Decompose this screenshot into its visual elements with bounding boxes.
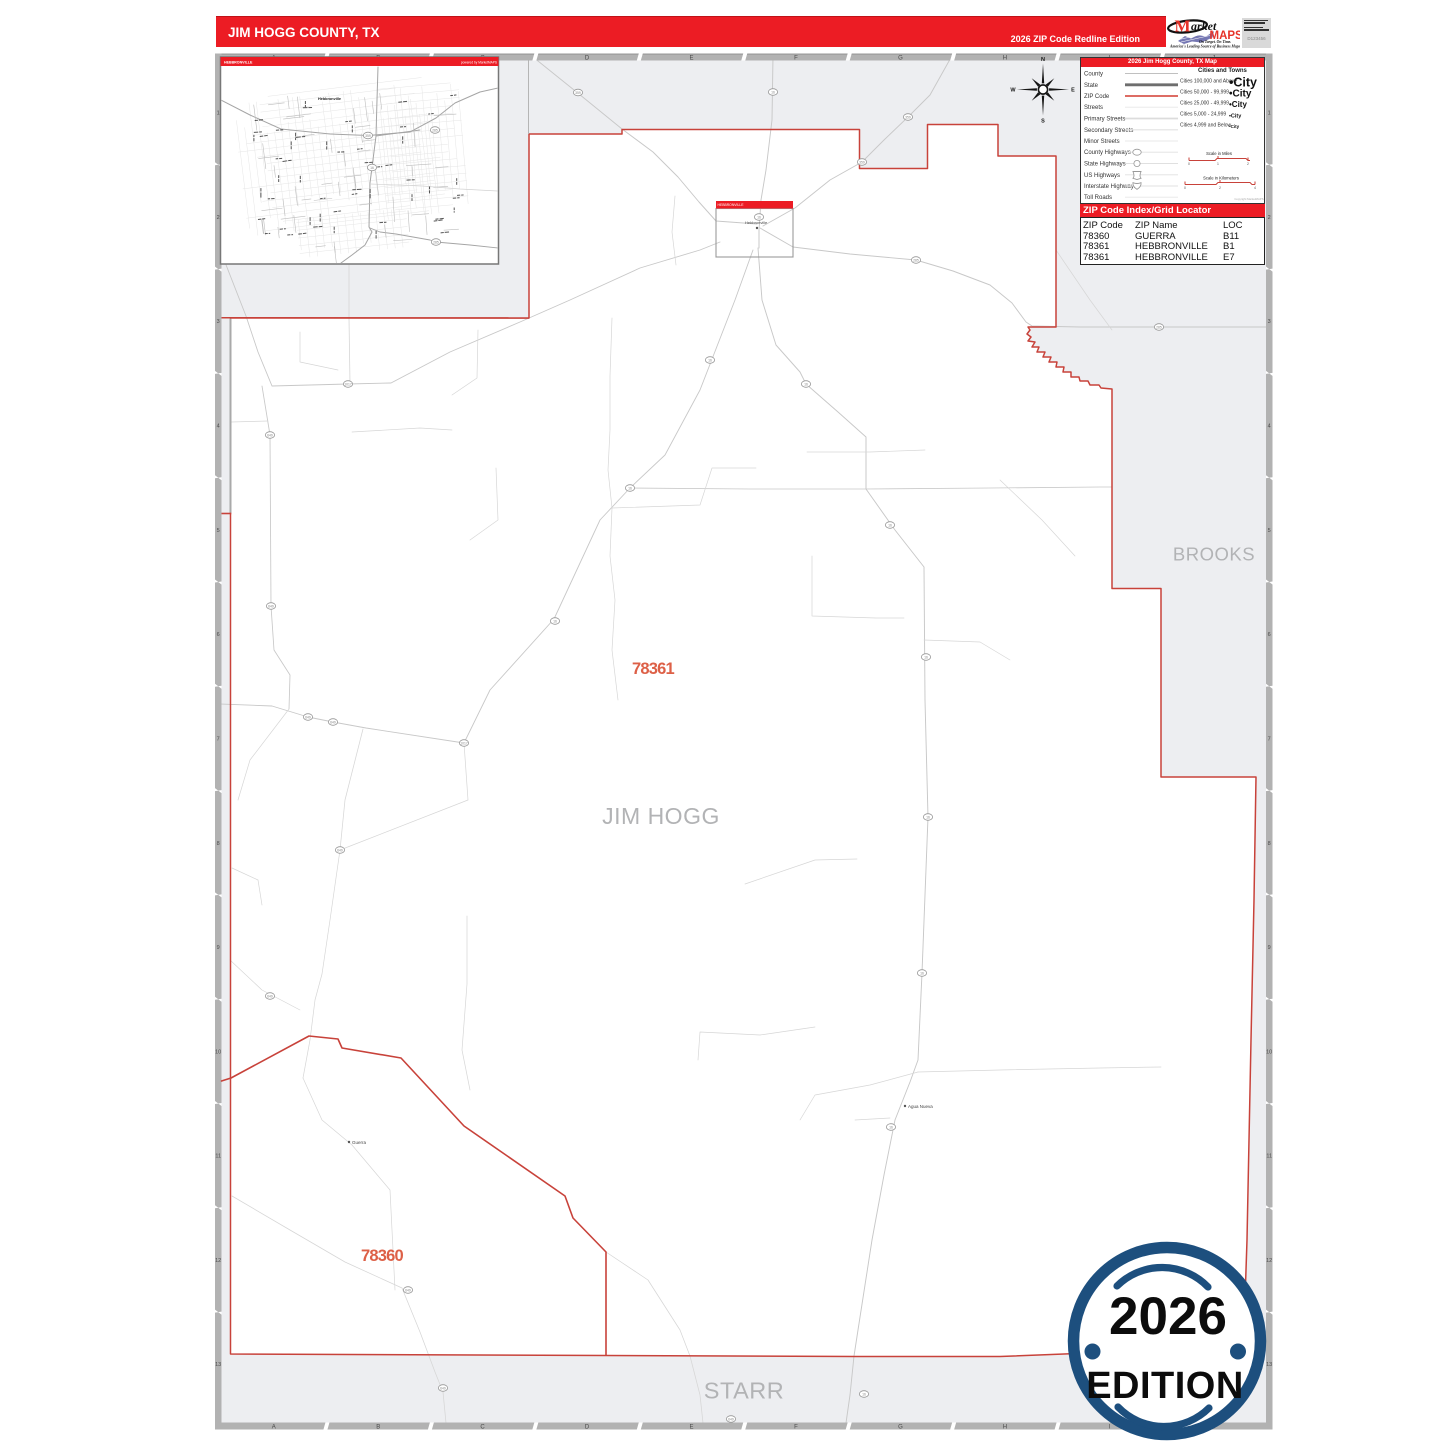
svg-text:16: 16	[926, 815, 930, 819]
svg-text:0: 0	[1184, 186, 1186, 190]
svg-text:B: B	[376, 1424, 380, 1430]
svg-text:78360: 78360	[361, 1247, 404, 1265]
svg-text:10: 10	[215, 1049, 221, 1055]
svg-text:285: 285	[913, 258, 919, 262]
svg-text:1: 1	[217, 111, 220, 117]
svg-text:•City: •City	[1229, 75, 1257, 89]
svg-text:4: 4	[1254, 186, 1256, 190]
svg-text:H: H	[1003, 55, 1007, 61]
svg-text:Copyright MarketMAPS: Copyright MarketMAPS	[1234, 197, 1263, 201]
svg-text:On Target. On Time.: On Target. On Time.	[1199, 40, 1231, 44]
svg-text:16: 16	[862, 1392, 866, 1396]
svg-text:HEBBRONVILLE: HEBBRONVILLE	[224, 60, 253, 64]
svg-text:G: G	[898, 1424, 903, 1430]
svg-text:649: 649	[440, 1386, 446, 1390]
svg-text:649: 649	[267, 433, 273, 437]
svg-text:16: 16	[757, 215, 761, 219]
svg-text:649: 649	[268, 604, 274, 608]
svg-text:649: 649	[267, 994, 273, 998]
svg-text:649: 649	[330, 720, 336, 724]
svg-text:9: 9	[217, 945, 220, 951]
svg-text:16: 16	[888, 523, 892, 527]
svg-text:Cities and Towns: Cities and Towns	[1198, 68, 1248, 74]
svg-text:Toll Roads: Toll Roads	[1084, 195, 1112, 201]
svg-text:Agua Nueva: Agua Nueva	[908, 1104, 933, 1109]
svg-text:D: D	[585, 55, 590, 61]
svg-text:Guerra: Guerra	[352, 1140, 367, 1145]
svg-text:N: N	[1041, 57, 1045, 63]
svg-text:State Highways: State Highways	[1084, 161, 1126, 167]
svg-text:State: State	[1084, 82, 1099, 88]
svg-text:2: 2	[1247, 162, 1249, 166]
svg-text:powered by MarketMAPS: powered by MarketMAPS	[461, 61, 497, 65]
svg-text:2: 2	[1219, 186, 1221, 190]
svg-text:9: 9	[1268, 945, 1271, 951]
svg-text:359: 359	[365, 134, 371, 138]
svg-text:11: 11	[1266, 1154, 1272, 1160]
svg-text:649: 649	[337, 848, 343, 852]
svg-text:1: 1	[1217, 162, 1219, 166]
svg-text:E: E	[1071, 87, 1075, 93]
svg-text:•City: •City	[1229, 113, 1242, 119]
svg-text:Streets: Streets	[1084, 105, 1103, 111]
svg-text:16: 16	[553, 619, 557, 623]
svg-text:E: E	[689, 1424, 693, 1430]
svg-text:5: 5	[1268, 528, 1271, 534]
svg-text:County Highways: County Highways	[1084, 150, 1131, 156]
svg-text:JIM HOGG: JIM HOGG	[602, 803, 720, 829]
svg-text:7: 7	[1268, 736, 1271, 742]
svg-text:649: 649	[305, 715, 311, 719]
svg-text:7: 7	[217, 736, 220, 742]
svg-text:Hebbronville: Hebbronville	[318, 97, 341, 101]
svg-text:2026: 2026	[1109, 1287, 1227, 1346]
svg-text:Scale in Kilometers: Scale in Kilometers	[1203, 175, 1239, 180]
svg-text:78361: 78361	[632, 660, 675, 678]
svg-text:12: 12	[215, 1258, 221, 1264]
svg-text:2: 2	[217, 215, 220, 221]
svg-text:1017: 1017	[344, 382, 352, 386]
svg-text:Interstate Highways: Interstate Highways	[1084, 184, 1137, 190]
svg-text:16: 16	[924, 655, 928, 659]
svg-text:359: 359	[859, 160, 865, 164]
svg-text:M: M	[1175, 17, 1191, 36]
svg-text:8: 8	[1268, 841, 1271, 847]
svg-text:Scale in Miles: Scale in Miles	[1206, 151, 1232, 156]
svg-text:13: 13	[215, 1362, 221, 1368]
svg-text:13: 13	[1266, 1362, 1272, 1368]
svg-text:ZIP Code: ZIP Code	[1084, 94, 1110, 100]
svg-text:US Highways: US Highways	[1084, 172, 1120, 178]
svg-text:Cities 5,000 - 24,999: Cities 5,000 - 24,999	[1180, 111, 1226, 117]
svg-text:W: W	[1010, 87, 1016, 93]
svg-text:10: 10	[1266, 1049, 1272, 1055]
svg-text:America's Leading Source of Bu: America's Leading Source of Business Map…	[1169, 45, 1240, 49]
svg-text:F: F	[794, 55, 798, 61]
svg-text:G: G	[898, 55, 903, 61]
svg-text:Hebbronville: Hebbronville	[745, 220, 768, 225]
svg-text:649: 649	[728, 1417, 734, 1421]
svg-text:3: 3	[217, 319, 220, 325]
svg-text:HEBBRONVILLE: HEBBRONVILLE	[718, 203, 745, 207]
svg-text:5: 5	[217, 528, 220, 534]
svg-text:F: F	[794, 1424, 798, 1430]
svg-text:E: E	[689, 55, 693, 61]
svg-text:Primary Streets: Primary Streets	[1084, 116, 1125, 122]
svg-text:16: 16	[708, 358, 712, 362]
svg-text:16: 16	[628, 486, 632, 490]
svg-text:D: D	[585, 1424, 590, 1430]
svg-text:Cities 4,999 and Below: Cities 4,999 and Below	[1180, 122, 1232, 128]
svg-text:C: C	[480, 1424, 485, 1430]
svg-text:11: 11	[215, 1154, 221, 1160]
svg-text:6: 6	[1268, 632, 1271, 638]
svg-text:359: 359	[575, 91, 581, 95]
svg-text:BROOKS: BROOKS	[1173, 544, 1255, 565]
svg-text:•City: •City	[1229, 88, 1252, 99]
svg-text:Cities 25,000 - 49,999: Cities 25,000 - 49,999	[1180, 100, 1229, 106]
svg-text:285: 285	[432, 128, 438, 132]
svg-text:A: A	[272, 1424, 276, 1430]
svg-text:8: 8	[217, 841, 220, 847]
svg-text:12: 12	[1266, 1258, 1272, 1264]
svg-text:Minor Streets: Minor Streets	[1084, 139, 1120, 145]
svg-text:•City: •City	[1229, 100, 1247, 109]
svg-text:EDITION: EDITION	[1086, 1365, 1244, 1407]
svg-text:285: 285	[1156, 325, 1162, 329]
svg-text:Cities 50,000 - 99,999: Cities 50,000 - 99,999	[1180, 89, 1229, 95]
svg-text:16: 16	[920, 971, 924, 975]
svg-text:16: 16	[804, 382, 808, 386]
svg-text:16: 16	[370, 166, 374, 170]
svg-text:649: 649	[405, 1288, 411, 1292]
svg-text:County: County	[1084, 71, 1103, 77]
svg-text:4: 4	[217, 424, 220, 430]
svg-text:•City: •City	[1229, 123, 1240, 128]
svg-text:STARR: STARR	[704, 1378, 784, 1404]
svg-text:6: 6	[217, 632, 220, 638]
svg-text:Secondary Streets: Secondary Streets	[1084, 127, 1133, 133]
svg-text:S: S	[1041, 119, 1045, 125]
svg-text:16: 16	[889, 1125, 893, 1129]
svg-text:1017: 1017	[460, 741, 468, 745]
svg-text:0: 0	[1188, 162, 1190, 166]
svg-text:H: H	[1003, 1424, 1007, 1430]
svg-text:359: 359	[905, 115, 911, 119]
svg-text:1: 1	[1268, 111, 1271, 117]
svg-text:4: 4	[1268, 424, 1271, 430]
svg-text:285: 285	[433, 240, 439, 244]
svg-text:3: 3	[1268, 319, 1271, 325]
svg-text:2: 2	[1268, 215, 1271, 221]
svg-text:16: 16	[771, 90, 775, 94]
